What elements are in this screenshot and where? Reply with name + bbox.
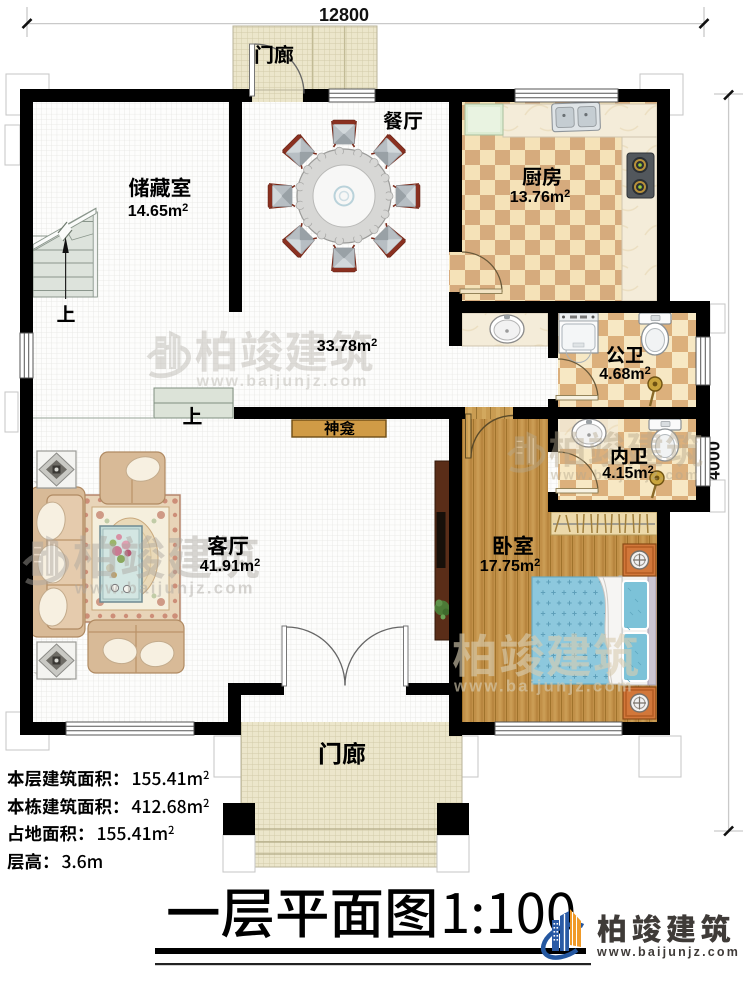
- svg-text:www.baijunjz.com: www.baijunjz.com: [596, 945, 740, 959]
- svg-text:www.baijunjz.com: www.baijunjz.com: [453, 677, 634, 696]
- svg-text:14.65m2: 14.65m2: [128, 202, 188, 220]
- svg-text:17.75m2: 17.75m2: [480, 557, 540, 575]
- svg-text:www.baijunjz.com: www.baijunjz.com: [196, 373, 369, 390]
- svg-text:13.76m2: 13.76m2: [510, 188, 570, 206]
- svg-text:4.68m2: 4.68m2: [599, 365, 651, 383]
- svg-text:12800: 12800: [319, 5, 369, 25]
- svg-text:www.baijunjz.com: www.baijunjz.com: [74, 579, 255, 598]
- svg-text:41.91m2: 41.91m2: [200, 557, 260, 575]
- svg-text:33.78m2: 33.78m2: [317, 337, 377, 355]
- svg-text:4.15m2: 4.15m2: [602, 464, 654, 482]
